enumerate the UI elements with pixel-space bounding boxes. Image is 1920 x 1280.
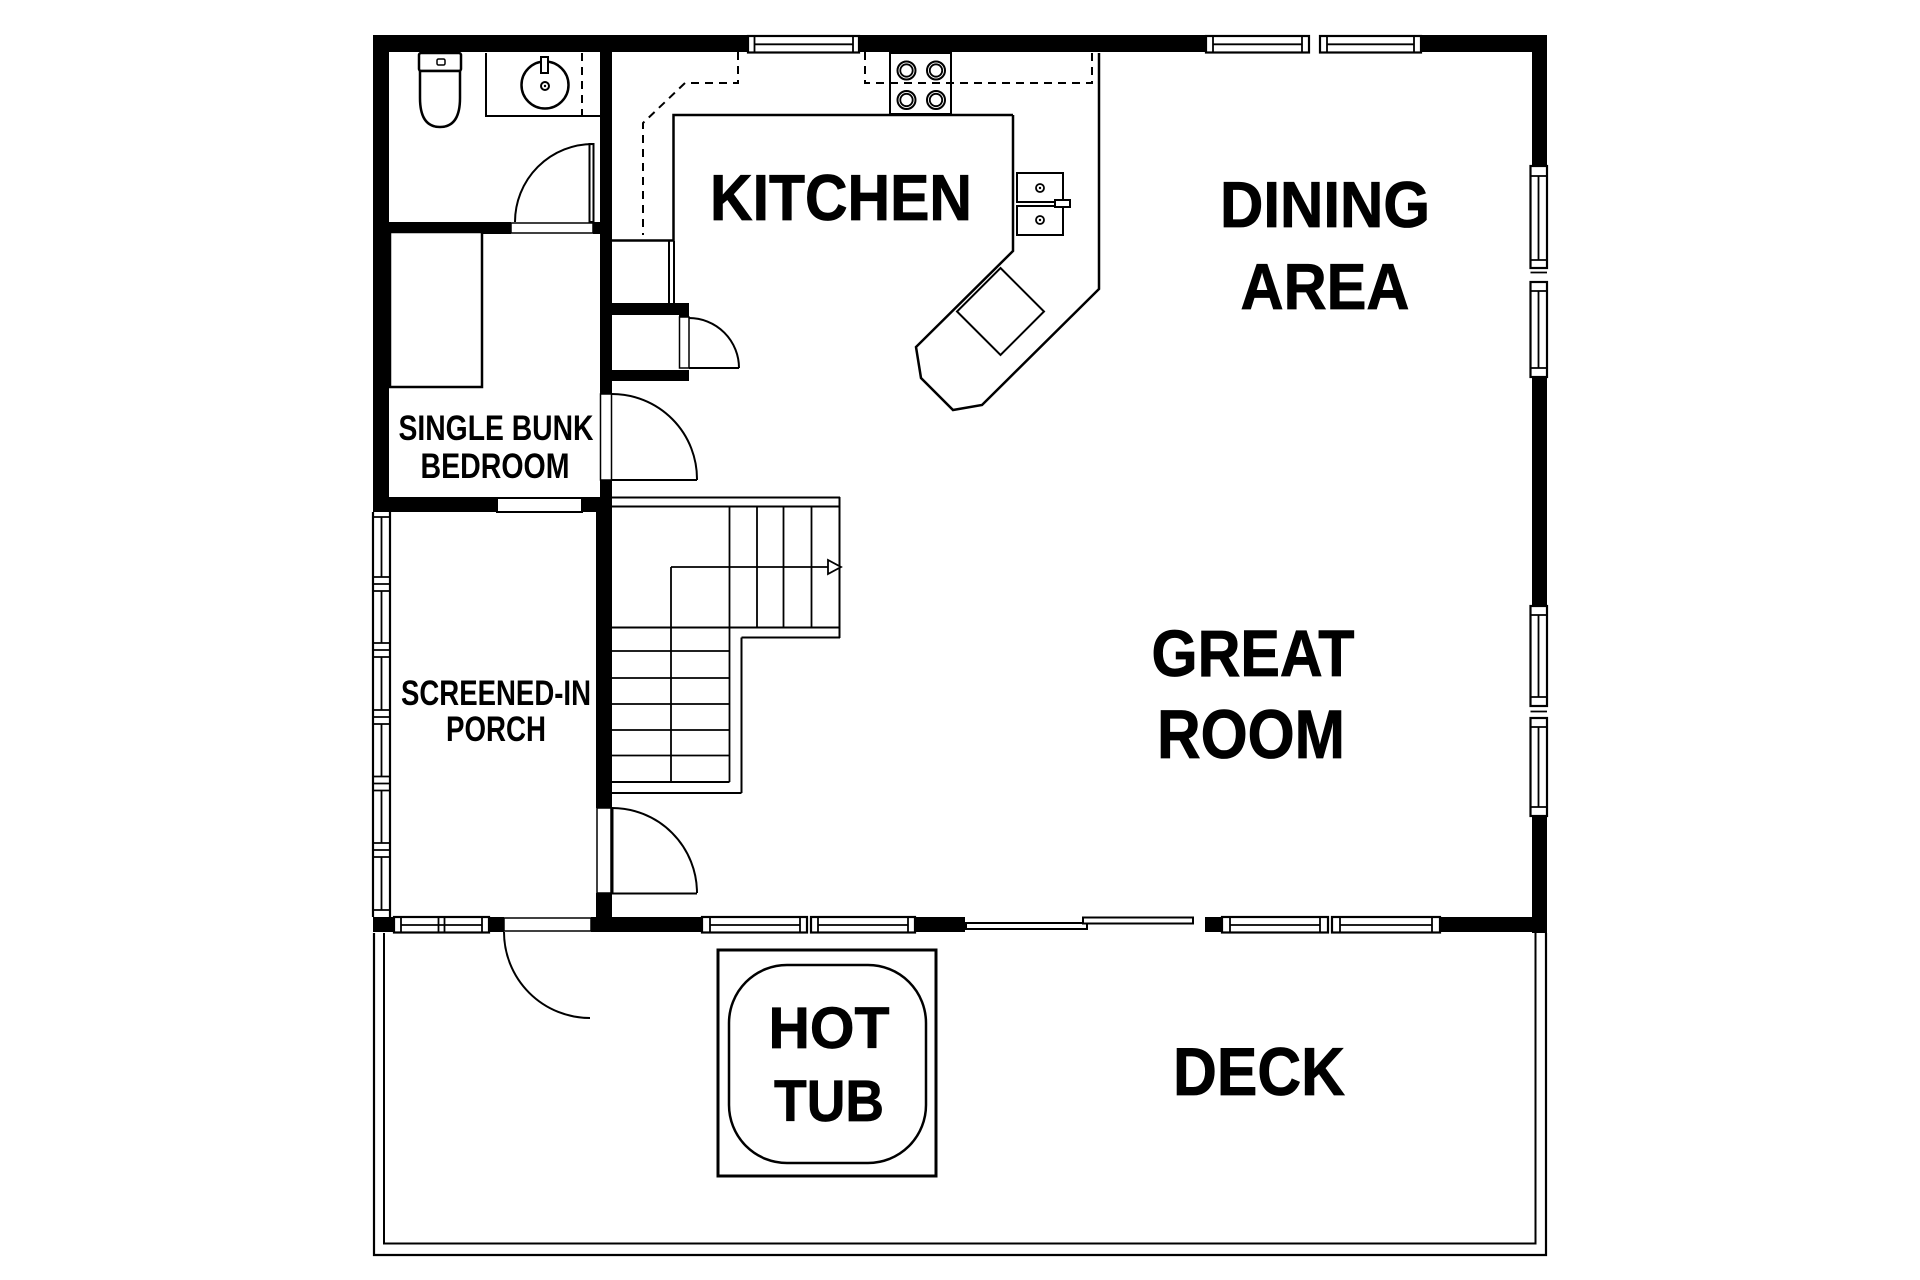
svg-text:DINING: DINING	[1220, 168, 1430, 241]
svg-text:BEDROOM: BEDROOM	[421, 447, 570, 486]
svg-text:SINGLE BUNK: SINGLE BUNK	[399, 409, 594, 448]
svg-text:PORCH: PORCH	[446, 710, 546, 749]
svg-text:GREAT: GREAT	[1152, 616, 1355, 690]
svg-text:TUB: TUB	[774, 1069, 884, 1134]
svg-text:KITCHEN: KITCHEN	[710, 161, 972, 234]
svg-text:DECK: DECK	[1173, 1034, 1345, 1110]
svg-text:AREA: AREA	[1241, 250, 1410, 323]
svg-text:SCREENED-IN: SCREENED-IN	[401, 674, 591, 713]
svg-text:HOT: HOT	[769, 996, 890, 1061]
svg-text:ROOM: ROOM	[1157, 696, 1345, 773]
